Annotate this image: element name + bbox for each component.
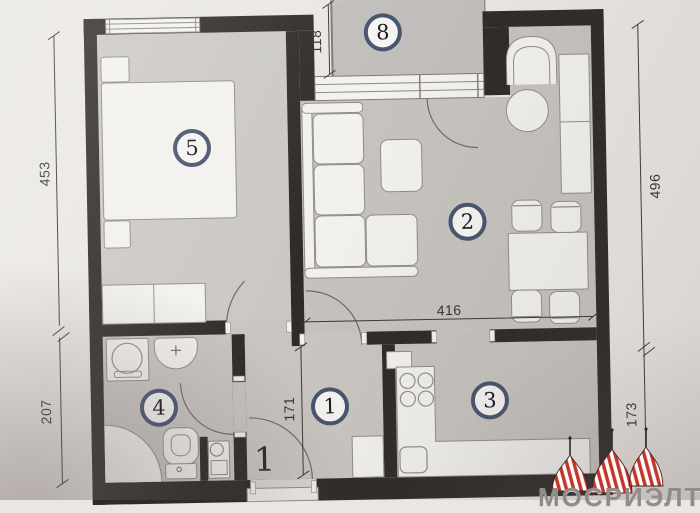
room-number: 1 <box>323 394 337 418</box>
bedroom-window <box>106 18 200 34</box>
shelf-divider <box>560 121 591 122</box>
dimension-right-upper: 496 <box>646 166 663 206</box>
entrance-floor-marker: 1 <box>254 439 276 478</box>
dimension-left-upper: 453 <box>36 154 53 194</box>
balcony-door-arc <box>427 98 478 149</box>
watermark-brand-text: МОСРИЭЛТ <box>538 482 700 513</box>
bedroom-door-arc <box>226 281 246 328</box>
balcony-window-band <box>315 73 484 100</box>
dimension-living-width: 416 <box>429 302 469 319</box>
wardrobe-divider <box>154 285 155 323</box>
dimension-left-lower: 207 <box>38 392 55 432</box>
washer-drum <box>112 343 143 374</box>
kitchen-sink <box>400 447 427 474</box>
bathroom-door-arc <box>181 382 234 435</box>
sink-faucet <box>171 345 181 355</box>
side-table <box>506 89 549 132</box>
room-number: 8 <box>376 20 390 44</box>
dome-spires <box>570 430 646 455</box>
dimension-hallway-depth: 171 <box>281 389 298 429</box>
dimension-balcony-depth: 118 <box>308 21 325 61</box>
dimension-lines <box>46 0 657 494</box>
floor-plan-photo: { "photo": { "description": "Apartment f… <box>0 0 700 500</box>
room-number: 5 <box>185 136 199 160</box>
room-number: 4 <box>152 396 166 420</box>
room-number: 2 <box>461 210 475 234</box>
living-door-arc <box>306 290 362 346</box>
room-number: 3 <box>483 388 497 412</box>
